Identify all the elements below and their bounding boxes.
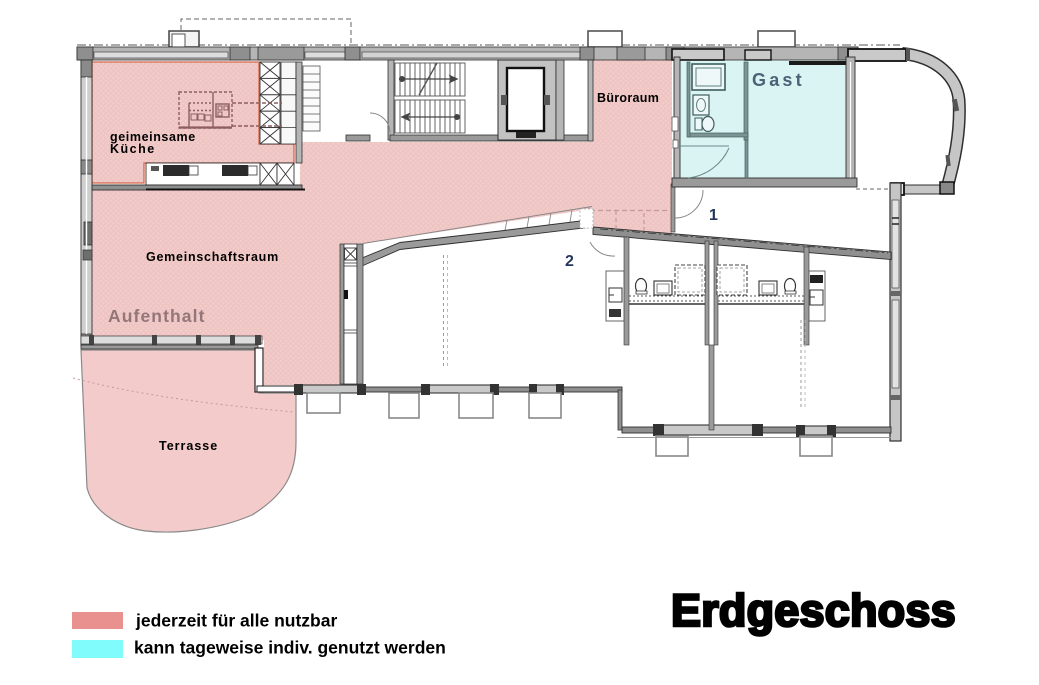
svg-text:Terrasse: Terrasse — [159, 439, 218, 453]
svg-text:1: 1 — [709, 207, 718, 224]
svg-text:Erdgeschoss: Erdgeschoss — [671, 585, 956, 636]
svg-text:Gast: Gast — [752, 70, 805, 90]
svg-text:Büroraum: Büroraum — [597, 91, 659, 105]
svg-text:kann tageweise indiv. genutzt: kann tageweise indiv. genutzt werden — [134, 638, 446, 658]
svg-text:Aufenthalt: Aufenthalt — [108, 306, 206, 326]
svg-text:2: 2 — [565, 253, 574, 270]
svg-text:Küche: Küche — [110, 142, 156, 156]
svg-text:Gemeinschaftsraum: Gemeinschaftsraum — [146, 250, 279, 264]
svg-text:jederzeit für alle nutzbar: jederzeit für alle nutzbar — [135, 611, 337, 631]
